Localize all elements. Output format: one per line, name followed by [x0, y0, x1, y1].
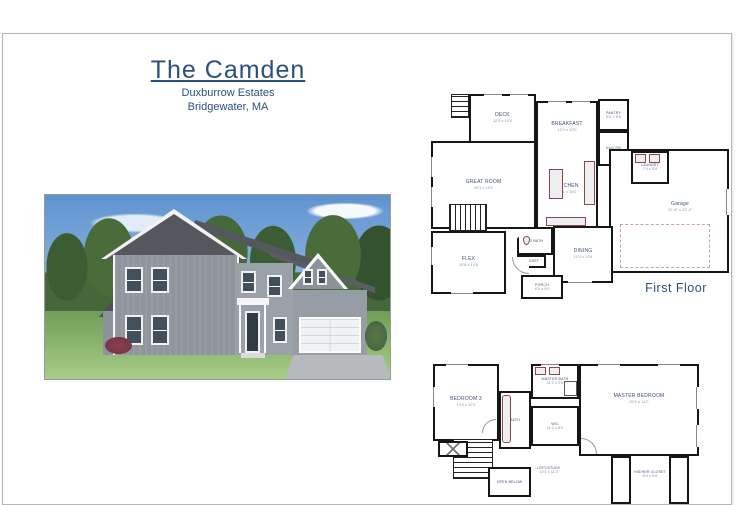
room-breakfast: BREAKFAST 12'2 x 10'0: [536, 101, 598, 151]
kitchen-island: [549, 169, 563, 199]
deck-stairs: [451, 94, 469, 118]
first-floor-plan: DECK 12'0 x 10'0 BREAKFAST 12'2 x 10'0 P…: [426, 89, 731, 304]
kitchen-peninsula: [546, 217, 586, 226]
room-dims: 14'4 x 11'2: [539, 470, 558, 474]
room-dims: 12'2 x 10'0: [557, 128, 576, 132]
garage-parking-outline: [620, 224, 710, 268]
plan-window: [429, 247, 434, 265]
second-floor-plan: BEDROOM 3 13'4 x 12'1 MASTER BATH 11'2 x…: [426, 359, 706, 504]
plan-window: [431, 387, 436, 407]
window: [151, 315, 169, 345]
window: [151, 267, 169, 293]
portico-post: [239, 305, 241, 353]
room-dims: 11'2 x 9'6: [547, 381, 564, 385]
room-label: OPEN BELOW: [497, 480, 523, 484]
plan-window: [429, 187, 434, 207]
room-dims: 12'0 x 10'0: [493, 119, 512, 123]
room-dims: 13'4 x 12'1: [456, 403, 475, 407]
plan-window: [694, 387, 699, 409]
washer-fixture: [635, 154, 646, 163]
room-deck: DECK 12'0 x 10'0: [469, 94, 536, 143]
room-dims: 12'2 x 13'4: [573, 255, 592, 259]
room-porch: PORCH 6'4 x 5'0: [521, 275, 563, 299]
room-dims: 7'4 x 5'8: [643, 167, 658, 171]
plan-window: [446, 362, 468, 367]
plan-window: [572, 99, 590, 104]
kitchen-counter: [584, 161, 595, 205]
plan-window: [568, 280, 592, 285]
window: [125, 267, 143, 293]
shower-fixture: [564, 381, 577, 396]
room-pantry: PANTRY 5'6 x 6'8: [598, 99, 629, 131]
plan-window: [541, 362, 559, 367]
room-master-bedroom: MASTER BEDROOM 20'1 x 14'2: [579, 364, 699, 456]
plan-window: [598, 362, 620, 367]
plan-window: [694, 425, 699, 447]
portico-roof: [237, 298, 269, 305]
garage-door: [299, 317, 361, 353]
portico-post: [264, 305, 266, 353]
his-closet: [611, 456, 631, 504]
first-floor-caption: First Floor: [621, 281, 731, 295]
green-bush: [365, 321, 387, 351]
room-dims: 6'4 x 5'6: [643, 474, 658, 478]
front-door-swing: [512, 257, 529, 274]
bedroom3-closet: [438, 441, 468, 457]
room-dims: 21'-8" x 22'-2": [668, 208, 693, 212]
location: Bridgewater, MA: [98, 101, 358, 113]
window: [303, 269, 313, 285]
window: [317, 269, 327, 285]
plan-window: [724, 189, 729, 215]
plan-window: [484, 92, 502, 97]
subtitle: Duxburrow Estates: [98, 87, 358, 99]
title-block: The Camden Duxburrow Estates Bridgewater…: [98, 56, 358, 113]
vanity-sink-fixture: [535, 367, 546, 375]
window: [267, 275, 282, 297]
room-dims: 20'1 x 15'2: [474, 186, 493, 190]
driveway: [285, 355, 391, 379]
plan-window: [429, 157, 434, 177]
room-dims: 20'1 x 14'2: [629, 400, 648, 404]
red-bush: [105, 337, 132, 354]
room-dims: 11'2 x 6'2: [547, 426, 564, 430]
room-dims: 6'4 x 5'0: [535, 287, 550, 291]
room-flex: FLEX 10'8 x 12'6: [431, 231, 506, 294]
her-closet: [669, 456, 689, 504]
window: [273, 317, 287, 343]
room-loft-study: LOFT/STUDY 14'4 x 11'2: [521, 459, 576, 481]
room-label: BATH: [510, 418, 520, 422]
room-his-her-closet: HIS/HER CLOSET 6'4 x 5'6: [631, 461, 669, 487]
plan-window: [548, 99, 566, 104]
window: [241, 271, 256, 293]
room-wic: WIC 11'2 x 6'2: [531, 406, 579, 446]
tub-fixture: [502, 395, 511, 443]
interior-stairs: [449, 204, 487, 231]
plan-window: [451, 291, 473, 296]
plan-window: [510, 92, 528, 97]
vanity-sink-fixture: [549, 367, 560, 375]
room-dims: 10'8 x 12'6: [459, 263, 478, 267]
front-steps: [241, 353, 265, 358]
document-page: The Camden Duxburrow Estates Bridgewater…: [2, 33, 732, 505]
plan-window: [658, 362, 680, 367]
garage-label: Garage 21'-8" x 22'-2": [636, 199, 724, 215]
room-dims: 5'6 x 6'8: [606, 115, 621, 119]
page-title: The Camden: [98, 56, 358, 85]
dryer-fixture: [649, 154, 660, 163]
front-door: [245, 311, 260, 353]
house-rendering: [44, 194, 391, 380]
